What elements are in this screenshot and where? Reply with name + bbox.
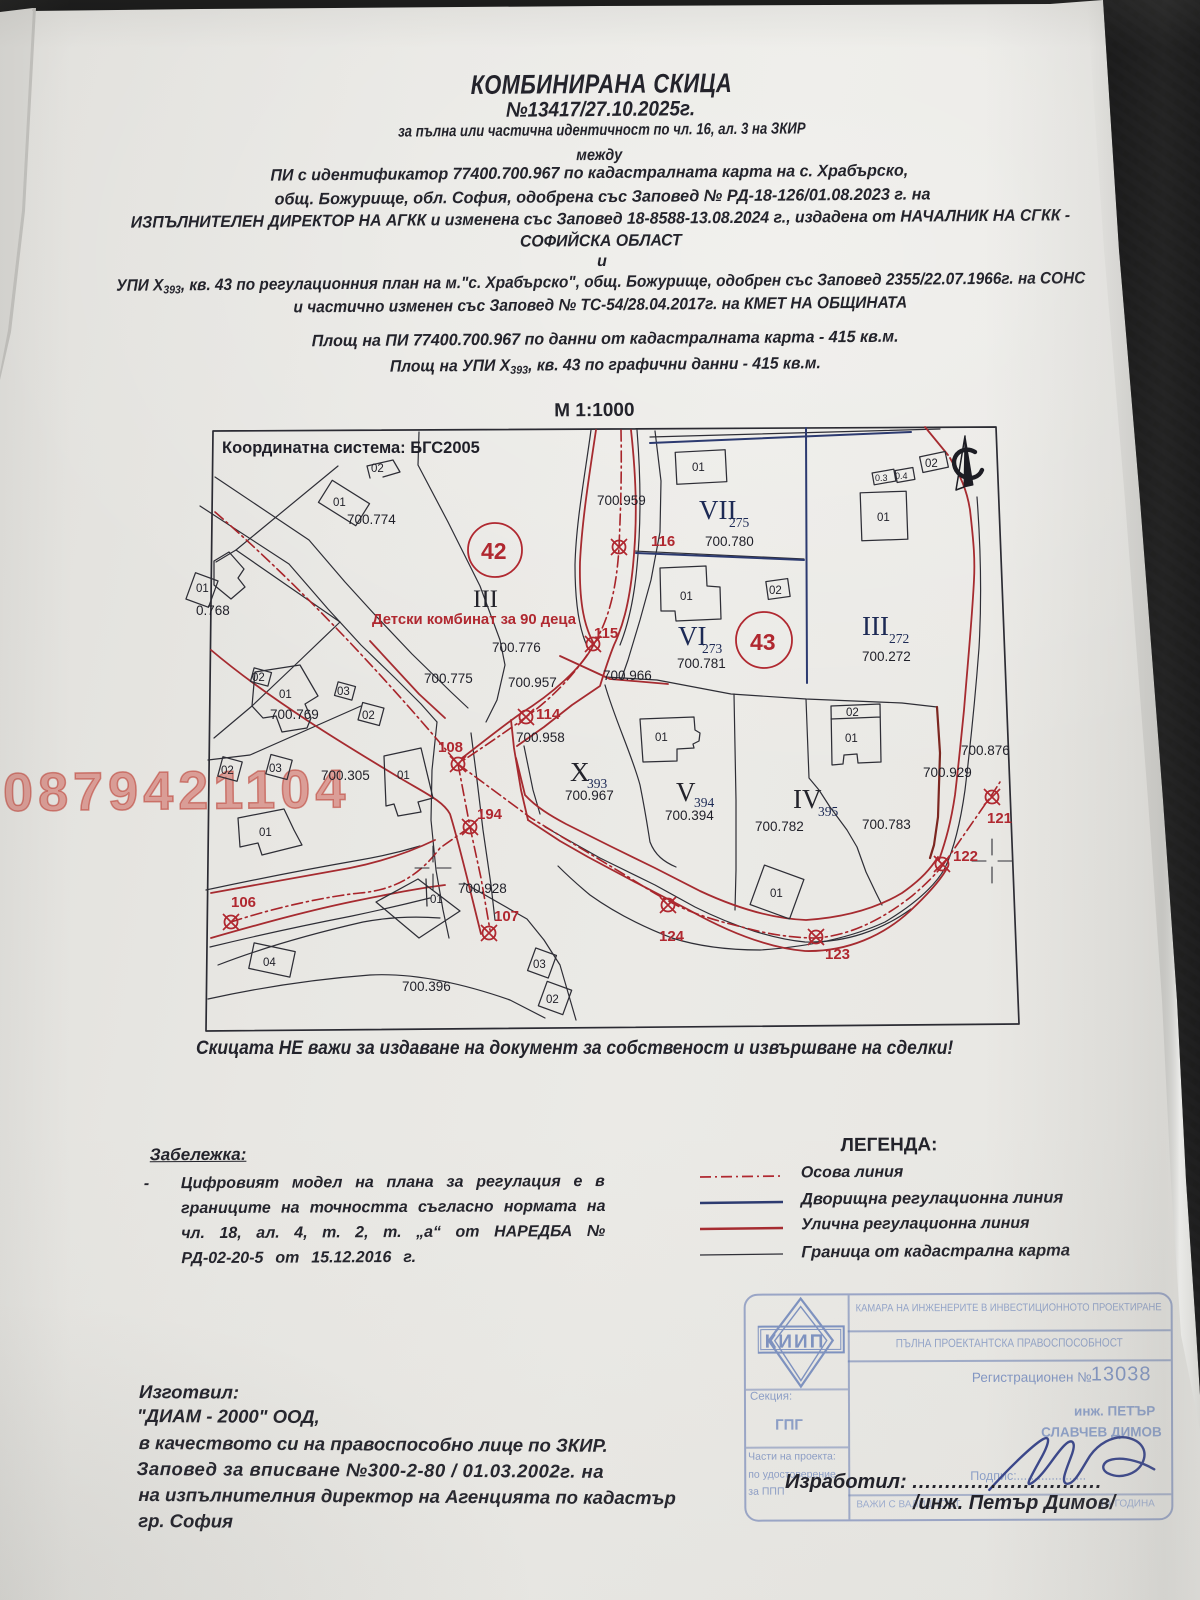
svg-text:122: 122	[953, 848, 978, 865]
svg-text:700.957: 700.957	[508, 675, 557, 690]
svg-text:700.876: 700.876	[961, 743, 1010, 758]
svg-text:02: 02	[252, 672, 265, 684]
svg-text:108: 108	[438, 739, 463, 756]
svg-text:393: 393	[587, 776, 608, 791]
svg-text:01: 01	[333, 497, 346, 509]
svg-text:275: 275	[729, 515, 750, 530]
svg-text:700.783: 700.783	[862, 817, 911, 832]
svg-text:700.272: 700.272	[862, 649, 911, 664]
svg-text:01: 01	[279, 689, 292, 701]
svg-text:115: 115	[594, 625, 618, 642]
svg-text:700.959: 700.959	[597, 493, 646, 508]
svg-text:700.396: 700.396	[402, 979, 451, 994]
svg-text:0.3: 0.3	[875, 473, 888, 483]
svg-text:КИИП: КИИП	[765, 1331, 826, 1352]
svg-text:01: 01	[259, 827, 272, 839]
svg-text:02: 02	[371, 463, 384, 475]
svg-text:273: 273	[702, 641, 723, 656]
svg-text:700.769: 700.769	[270, 707, 319, 722]
svg-text:700.928: 700.928	[458, 881, 507, 896]
svg-text:VII: VII	[699, 495, 736, 525]
svg-text:01: 01	[877, 512, 890, 524]
svg-text:01: 01	[430, 894, 443, 906]
svg-text:700.958: 700.958	[516, 730, 565, 745]
svg-text:02: 02	[925, 458, 938, 470]
svg-text:700.775: 700.775	[424, 671, 473, 686]
svg-text:02: 02	[546, 994, 559, 1006]
svg-text:VI: VI	[678, 621, 707, 651]
svg-text:01: 01	[770, 888, 783, 900]
svg-text:0.768: 0.768	[196, 603, 230, 618]
svg-text:272: 272	[889, 631, 909, 646]
svg-text:Детски комбинат за 90 деца: Детски комбинат за 90 деца	[372, 612, 577, 628]
svg-text:121: 121	[987, 810, 1012, 827]
svg-text:X: X	[570, 757, 590, 787]
svg-text:03: 03	[337, 686, 350, 698]
svg-text:III: III	[473, 586, 498, 613]
svg-text:0.4: 0.4	[895, 471, 908, 481]
svg-text:700.776: 700.776	[492, 640, 541, 655]
svg-text:395: 395	[818, 804, 839, 819]
svg-text:42: 42	[481, 538, 507, 564]
svg-text:01: 01	[397, 770, 410, 782]
svg-text:106: 106	[231, 894, 256, 911]
svg-text:III: III	[862, 611, 889, 641]
svg-text:Координатна система: БГС2005: Координатна система: БГС2005	[222, 439, 480, 457]
svg-text:03: 03	[533, 959, 546, 971]
svg-text:01: 01	[655, 732, 668, 744]
svg-text:700.782: 700.782	[755, 819, 804, 834]
svg-text:394: 394	[694, 795, 715, 810]
svg-text:02: 02	[769, 585, 782, 597]
svg-text:01: 01	[692, 462, 705, 474]
svg-text:123: 123	[825, 946, 850, 963]
svg-text:43: 43	[750, 629, 776, 655]
svg-text:114: 114	[536, 706, 561, 723]
svg-text:02: 02	[362, 710, 375, 722]
svg-text:124: 124	[659, 928, 685, 945]
svg-text:700.781: 700.781	[677, 656, 726, 671]
svg-text:700.929: 700.929	[923, 765, 972, 780]
svg-text:107: 107	[494, 908, 519, 925]
svg-text:04: 04	[263, 957, 276, 969]
svg-text:700.966: 700.966	[603, 668, 652, 683]
svg-text:700.774: 700.774	[347, 512, 396, 527]
svg-text:V: V	[676, 777, 696, 807]
svg-text:01: 01	[680, 591, 693, 603]
svg-text:01: 01	[845, 733, 858, 745]
svg-text:700.967: 700.967	[565, 788, 614, 803]
svg-text:700.780: 700.780	[705, 534, 754, 549]
svg-text:194: 194	[477, 806, 503, 823]
svg-text:02: 02	[846, 707, 859, 719]
svg-text:700.394: 700.394	[665, 808, 714, 823]
svg-text:IV: IV	[793, 784, 822, 814]
svg-text:01: 01	[196, 583, 209, 595]
svg-text:116: 116	[651, 533, 675, 550]
